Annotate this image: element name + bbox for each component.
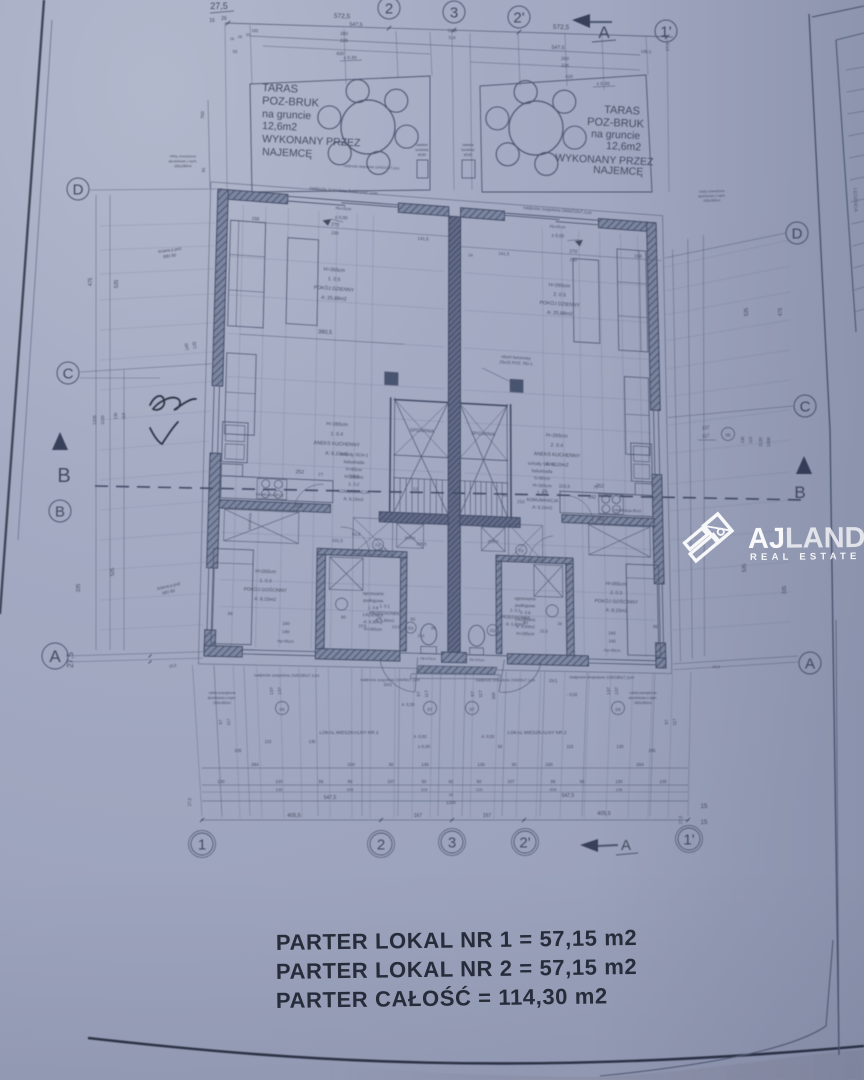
svg-text:REAL ESTATE: REAL ESTATE <box>750 551 861 563</box>
svg-text:AJLAND: AJLAND <box>748 522 864 555</box>
svg-text:PARTER LOKAL NR 2 = 57,15 m2: PARTER LOKAL NR 2 = 57,15 m2 <box>276 954 638 984</box>
svg-text:PARTER CAŁOŚĆ = 114,30 m2: PARTER CAŁOŚĆ = 114,30 m2 <box>276 983 608 1013</box>
svg-text:PARTER LOKAL NR 1 = 57,15 m2: PARTER LOKAL NR 1 = 57,15 m2 <box>276 925 638 955</box>
